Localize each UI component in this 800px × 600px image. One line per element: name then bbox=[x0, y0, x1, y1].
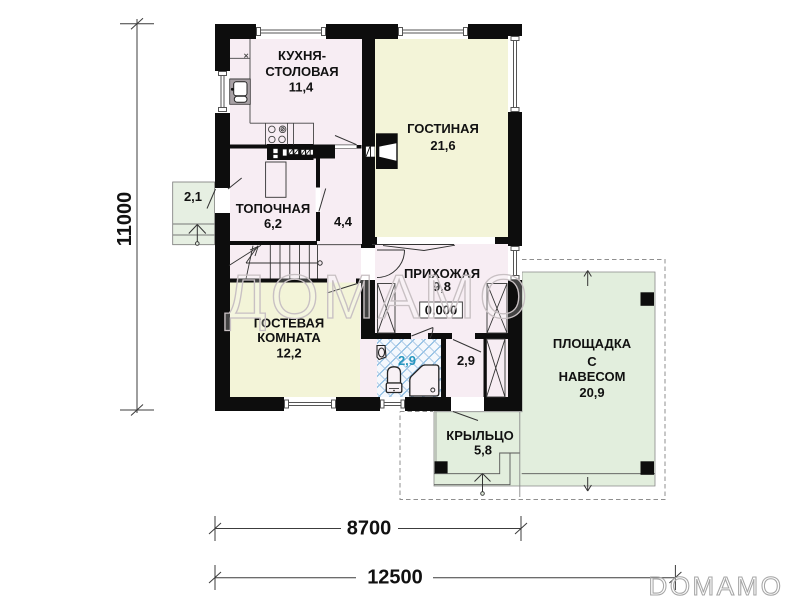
svg-text:КОМНАТА: КОМНАТА bbox=[257, 330, 321, 345]
svg-text:ДОМАМО: ДОМАМО bbox=[224, 263, 531, 332]
svg-text:2,1: 2,1 bbox=[184, 189, 202, 204]
svg-text:2,9: 2,9 bbox=[457, 353, 475, 368]
svg-text:11000: 11000 bbox=[114, 192, 136, 247]
svg-text:12500: 12500 bbox=[367, 567, 423, 589]
svg-text:ГОСТИНАЯ: ГОСТИНАЯ bbox=[407, 121, 479, 136]
svg-text:6,2: 6,2 bbox=[264, 216, 282, 231]
svg-text:С: С bbox=[587, 354, 597, 369]
svg-text:КУХНЯ-: КУХНЯ- bbox=[278, 48, 326, 63]
svg-text:2,9: 2,9 bbox=[398, 353, 416, 368]
svg-text:НАВЕСОМ: НАВЕСОМ bbox=[559, 369, 626, 384]
svg-text:ПЛОЩАДКА: ПЛОЩАДКА bbox=[553, 336, 632, 351]
svg-text:DOMAMO: DOMAMO bbox=[649, 571, 784, 600]
svg-text:8700: 8700 bbox=[347, 518, 392, 540]
svg-text:11,4: 11,4 bbox=[289, 80, 314, 95]
svg-text:СТОЛОВАЯ: СТОЛОВАЯ bbox=[265, 64, 338, 79]
svg-text:ТОПОЧНАЯ: ТОПОЧНАЯ bbox=[236, 201, 310, 216]
svg-text:КРЫЛЬЦО: КРЫЛЬЦО bbox=[446, 428, 513, 443]
svg-text:21,6: 21,6 bbox=[430, 138, 455, 153]
svg-text:4,4: 4,4 bbox=[334, 214, 353, 229]
svg-text:5,8: 5,8 bbox=[474, 443, 492, 458]
svg-text:12,2: 12,2 bbox=[276, 346, 301, 361]
svg-text:20,9: 20,9 bbox=[579, 385, 604, 400]
